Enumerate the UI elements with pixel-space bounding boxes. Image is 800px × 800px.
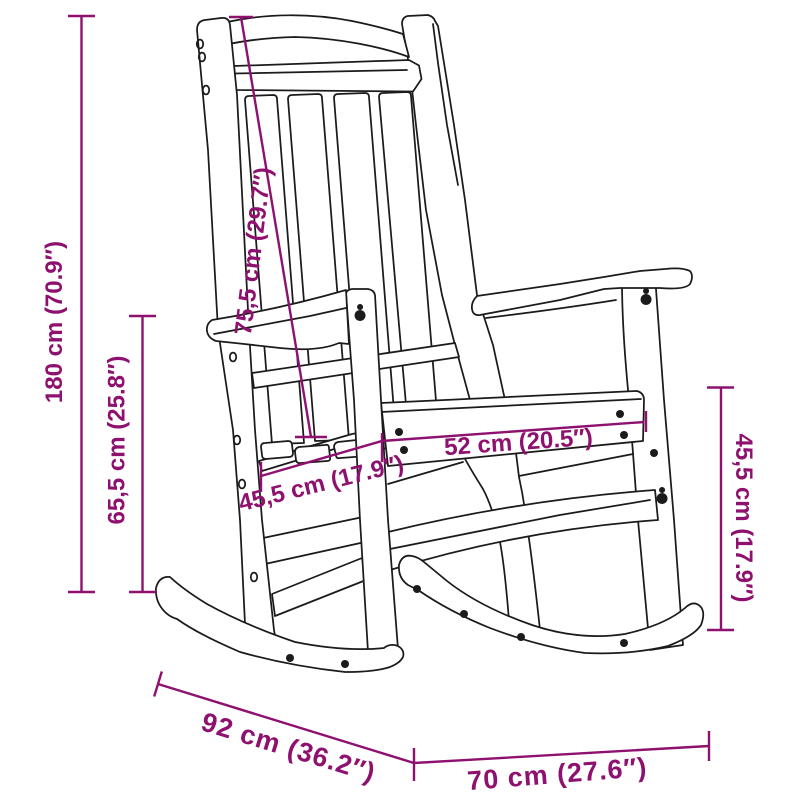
svg-text:65,5 cm (25.8″): 65,5 cm (25.8″) [104, 356, 131, 525]
svg-text:92 cm (36.2″): 92 cm (36.2″) [198, 707, 379, 788]
svg-text:45,5 cm (17.9″): 45,5 cm (17.9″) [730, 434, 757, 603]
svg-text:180 cm (70.9″): 180 cm (70.9″) [41, 241, 68, 403]
